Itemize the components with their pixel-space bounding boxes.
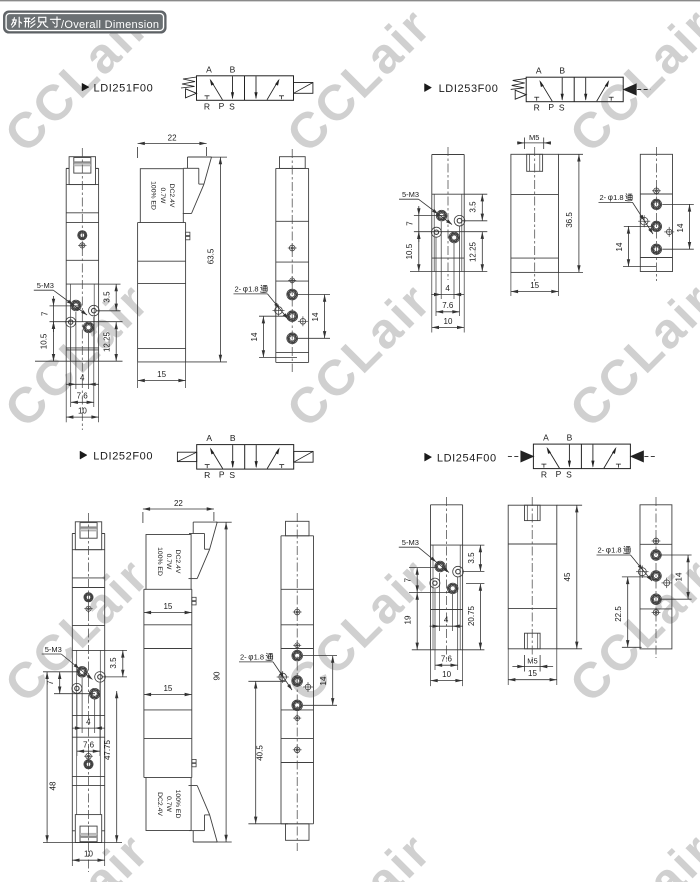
svg-text:100% ED: 100% ED: [156, 547, 163, 576]
svg-text:LDI252F00: LDI252F00: [93, 451, 153, 463]
svg-text:7.6: 7.6: [442, 301, 454, 310]
svg-text:15: 15: [157, 370, 166, 379]
svg-text:15: 15: [163, 602, 172, 611]
svg-text:14: 14: [615, 242, 624, 251]
svg-text:2-: 2-: [240, 653, 247, 662]
svg-text:5-M3: 5-M3: [402, 190, 419, 199]
svg-text:B: B: [567, 433, 573, 443]
svg-text:P: P: [219, 470, 225, 480]
svg-text:1.8: 1.8: [611, 546, 621, 555]
svg-text:7: 7: [405, 221, 414, 226]
svg-text:A: A: [206, 64, 212, 74]
svg-text:10: 10: [78, 407, 87, 416]
svg-text:12.25: 12.25: [469, 241, 478, 262]
svg-text:P: P: [548, 102, 554, 112]
svg-text:2-: 2-: [600, 193, 607, 202]
svg-text:48: 48: [49, 781, 58, 790]
svg-text:DC2.4V: DC2.4V: [168, 184, 175, 208]
svg-text:B: B: [559, 66, 565, 76]
svg-text:5-M3: 5-M3: [45, 645, 62, 654]
svg-text:M5: M5: [529, 133, 539, 142]
svg-text:2-: 2-: [235, 285, 242, 294]
svg-text:7.6: 7.6: [441, 655, 453, 664]
svg-text:12.25: 12.25: [103, 331, 112, 352]
svg-text:14: 14: [675, 572, 684, 581]
svg-text:1.8: 1.8: [613, 193, 623, 202]
svg-text:14: 14: [311, 312, 320, 321]
svg-text:7: 7: [46, 680, 55, 685]
svg-text:10.5: 10.5: [405, 243, 414, 259]
svg-text:10: 10: [84, 850, 93, 859]
svg-text:63.5: 63.5: [207, 248, 216, 264]
svg-text:19: 19: [404, 615, 413, 624]
svg-text:DC2.4V: DC2.4V: [156, 792, 163, 816]
svg-text:P: P: [219, 101, 225, 111]
svg-text:5-M3: 5-M3: [402, 538, 419, 547]
svg-text:B: B: [230, 433, 236, 443]
svg-text:LDI251F00: LDI251F00: [94, 82, 154, 94]
svg-text:2-: 2-: [598, 546, 605, 555]
svg-text:LDI254F00: LDI254F00: [437, 453, 497, 465]
svg-text:14: 14: [676, 223, 685, 232]
svg-text:3.5: 3.5: [467, 552, 476, 564]
svg-text:7: 7: [41, 311, 50, 316]
svg-text:3.5: 3.5: [469, 201, 478, 213]
svg-text:10.5: 10.5: [40, 333, 49, 349]
svg-text:3.5: 3.5: [103, 291, 112, 303]
svg-text:0.7W: 0.7W: [165, 554, 172, 570]
svg-text:40.5: 40.5: [256, 745, 265, 761]
svg-text:S: S: [559, 103, 565, 113]
svg-text:A: A: [543, 433, 549, 443]
svg-text:7: 7: [404, 577, 413, 582]
svg-text:15: 15: [528, 669, 537, 678]
svg-text:15: 15: [163, 684, 172, 693]
svg-text:R: R: [534, 103, 540, 113]
svg-text:5-M3: 5-M3: [37, 281, 54, 290]
svg-text:1.8: 1.8: [254, 653, 264, 662]
svg-text:0.7W: 0.7W: [159, 188, 166, 204]
svg-text:47.75: 47.75: [103, 739, 112, 760]
svg-text:4: 4: [444, 616, 449, 625]
svg-text:R: R: [204, 470, 210, 480]
svg-text:10: 10: [442, 670, 451, 679]
svg-text:B: B: [230, 64, 236, 74]
svg-text:7.6: 7.6: [77, 392, 89, 401]
svg-text:45: 45: [563, 572, 572, 581]
svg-text:100% ED: 100% ED: [174, 790, 181, 819]
svg-text:S: S: [566, 470, 572, 480]
svg-text:1.8: 1.8: [248, 285, 258, 294]
svg-text:R: R: [541, 470, 547, 480]
svg-text:LDI253F00: LDI253F00: [439, 83, 499, 95]
svg-text:15: 15: [530, 281, 539, 290]
svg-text:0.7W: 0.7W: [165, 796, 172, 812]
svg-text:100% ED: 100% ED: [150, 181, 157, 210]
svg-text:M5: M5: [527, 656, 537, 665]
svg-text:36.5: 36.5: [565, 212, 574, 228]
svg-text:/Overall Dimension: /Overall Dimension: [61, 19, 159, 31]
svg-text:4: 4: [445, 284, 450, 293]
svg-text:20.75: 20.75: [467, 605, 476, 626]
svg-text:4: 4: [80, 374, 85, 383]
svg-text:S: S: [229, 101, 235, 111]
svg-text:90: 90: [212, 671, 221, 680]
svg-text:A: A: [536, 66, 542, 76]
svg-text:22: 22: [174, 499, 183, 508]
svg-text:7.6: 7.6: [83, 741, 95, 750]
svg-text:3.5: 3.5: [109, 657, 118, 669]
svg-text:14: 14: [250, 332, 259, 341]
svg-text:P: P: [556, 469, 562, 479]
svg-text:R: R: [204, 101, 210, 111]
svg-text:4: 4: [86, 718, 91, 727]
svg-text:A: A: [206, 433, 212, 443]
svg-text:22: 22: [168, 133, 177, 142]
svg-text:14: 14: [319, 676, 328, 685]
svg-text:10: 10: [444, 317, 453, 326]
svg-text:22.5: 22.5: [614, 606, 623, 622]
svg-text:S: S: [229, 470, 235, 480]
svg-text:DC2.4V: DC2.4V: [174, 550, 181, 574]
